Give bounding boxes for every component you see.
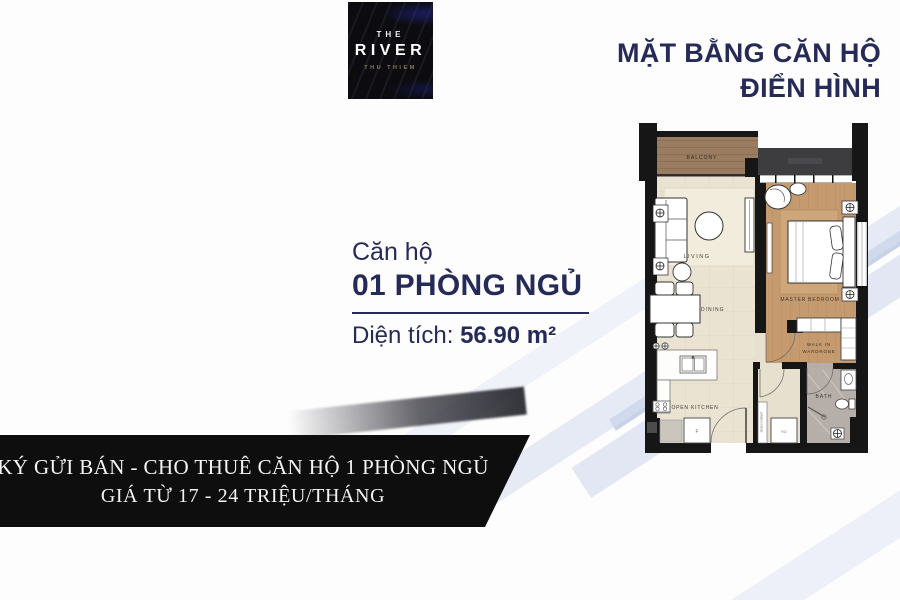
area-value: 56.90 m² [460,322,556,349]
fridge: F [684,418,710,443]
bedroom-label: MASTER BEDROOM [780,297,839,303]
wardrobe-label1: WALK IN [807,342,831,347]
wardrobe-label2: WARDROBE [802,349,835,354]
balcony-label: BALCONY [687,155,718,161]
bg-stripe-gray [287,387,527,440]
apartment-info: Căn hộ 01 PHÒNG NGỦ Diện tích: 56.90 m² [352,238,592,350]
page-title-line2: ĐIỂN HÌNH [617,71,881,106]
brand-logo-thuthiem: THU THIEM [364,65,416,71]
divider-rule [352,312,589,314]
vanity [841,370,856,390]
brand-logo-the: THE [377,30,405,39]
apartment-area: Diện tích: 56.90 m² [352,322,592,350]
side-table [673,263,691,281]
entry-niche [647,422,657,433]
washer-label: RD [781,429,787,434]
area-label: Diện tích: [352,322,453,349]
promo-line1: KÝ GỬI BÁN - CHO THUÊ CĂN HỘ 1 PHÒNG NGỦ [0,455,489,480]
stove [653,401,670,412]
apartment-prefix: Căn hộ [352,238,592,267]
page-title: MẶT BẰNG CĂN HỘ ĐIỂN HÌNH [617,36,881,106]
kitchen-sink [680,356,706,373]
balcony-glass-door [653,174,745,177]
floorplan-svg: LIVING DINING [638,120,870,455]
apartment-name: 01 PHÒNG NGỦ [352,269,592,303]
kitchen-label: OPEN KITCHEN [671,405,718,411]
page-title-line1: MẶT BẰNG CĂN HỘ [617,36,881,71]
floorplan: LIVING DINING [638,120,870,455]
washer: RD [771,418,797,443]
bed [788,217,855,287]
bath-label: BATH [816,394,833,400]
coffee-table [695,212,723,240]
promo-banner: KÝ GỬI BÁN - CHO THUÊ CĂN HỘ 1 PHÒNG NGỦ… [0,435,530,527]
bedroom-console [767,223,772,273]
brand-logo-river: RIVER [355,42,426,60]
fridge-label: F [695,429,698,435]
living-label: LIVING [683,254,710,260]
shoe-cabinet: SHOES CABINET [758,402,767,443]
bg-stripe-blue-4 [467,529,900,600]
dining-label: DINING [701,307,725,313]
shoe-cabinet-label: SHOES CABINET [760,411,764,432]
dining-table [650,295,700,323]
toilet [836,399,856,409]
brand-logo: THE RIVER THU THIEM [348,2,433,99]
tv-console [745,198,754,252]
ac-ledge [758,148,852,175]
poster-canvas: { "logo": { "brand_top": "THE", "brand_n… [0,0,900,600]
promo-line2: GIÁ TỪ 17 - 24 TRIỆU/THÁNG [101,485,385,508]
